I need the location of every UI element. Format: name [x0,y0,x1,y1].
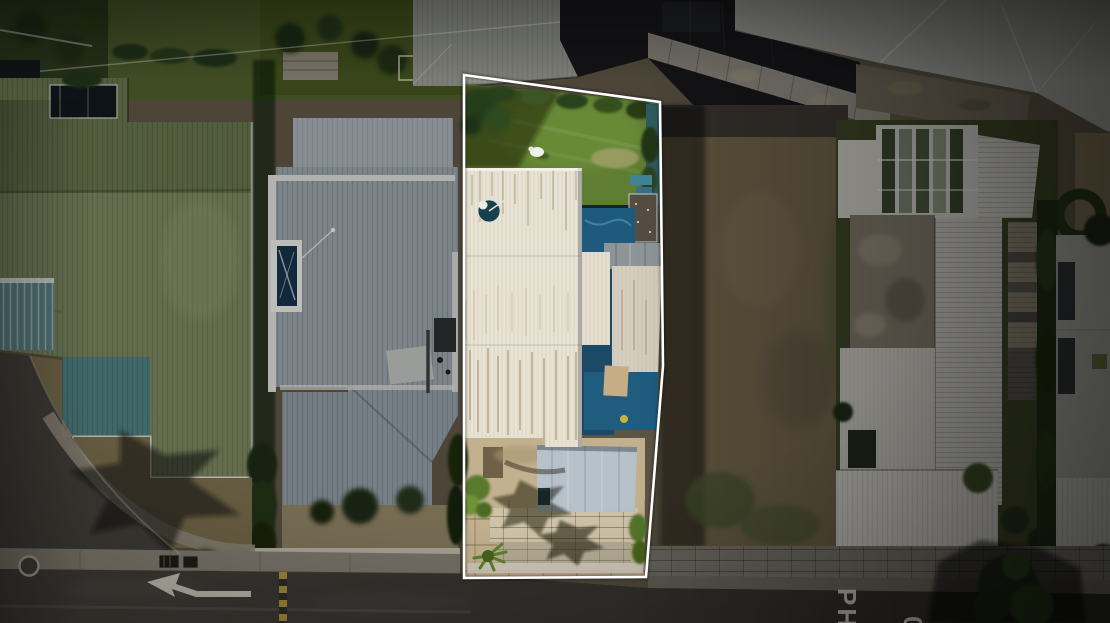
aerial-photo: PH 20 [0,0,1110,623]
vignette [0,0,1110,623]
